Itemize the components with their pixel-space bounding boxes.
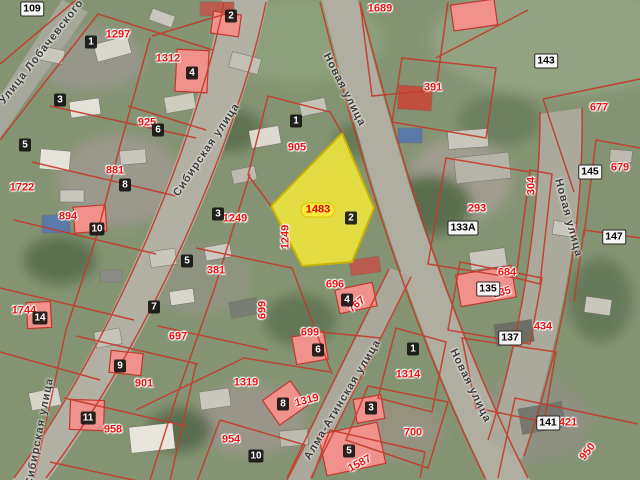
parcel-number-label[interactable]: 881 [106, 165, 124, 178]
house-number-label[interactable]: 10 [248, 450, 263, 463]
house-number-label[interactable]: 7 [148, 301, 160, 314]
house-number-label[interactable]: 1 [407, 343, 419, 356]
parcel-number-label[interactable]: 699 [301, 327, 319, 340]
house-number-label[interactable]: 5 [19, 139, 31, 152]
house-number-label[interactable]: 14 [32, 312, 47, 325]
parcel-number-label[interactable]: 391 [424, 82, 442, 95]
parcel-number-label[interactable]: 304 [526, 177, 539, 195]
street-name-label: Сибирская улица [23, 377, 57, 480]
parcel-number-label[interactable]: 1249 [280, 225, 293, 249]
parcel-number-label[interactable]: 1722 [10, 182, 34, 195]
street-name-label: Сибирская улица [171, 101, 243, 199]
parcel-number-label[interactable]: 677 [590, 102, 608, 115]
house-number-label[interactable]: 10 [89, 223, 104, 236]
address-label[interactable]: 137 [498, 331, 522, 346]
parcel-number-label[interactable]: 1297 [106, 29, 130, 42]
house-number-label[interactable]: 4 [186, 67, 198, 80]
parcel-number-label[interactable]: 421 [559, 417, 577, 430]
house-number-label[interactable]: 5 [181, 255, 193, 268]
parcel-number-label[interactable]: 901 [135, 378, 153, 391]
street-name-label: Новая улица [446, 347, 493, 425]
house-number-label[interactable]: 5 [343, 445, 355, 458]
parcel-number-label[interactable]: 1314 [396, 369, 420, 382]
street-name-label: Новая улица [320, 51, 368, 129]
house-number-label[interactable]: 3 [54, 94, 66, 107]
label-layer: 1297131216893916779259058811722293304679… [0, 0, 640, 480]
parcel-number-label[interactable]: 684 [498, 267, 516, 280]
house-number-label[interactable]: 6 [312, 344, 324, 357]
house-number-label[interactable]: 11 [81, 412, 96, 425]
parcel-number-label[interactable]: 697 [169, 331, 187, 344]
house-number-label[interactable]: 9 [114, 360, 126, 373]
parcel-number-label[interactable]: 696 [326, 279, 344, 292]
address-label[interactable]: 133А [447, 221, 478, 236]
street-name-label: Новая улица [551, 177, 584, 258]
parcel-number-label[interactable]: 1689 [368, 3, 392, 16]
parcel-number-label[interactable]: 1319 [234, 377, 258, 390]
address-label[interactable]: 135 [476, 282, 500, 297]
house-number-label[interactable]: 3 [365, 402, 377, 415]
house-number-label[interactable]: 8 [119, 179, 131, 192]
parcel-number-label[interactable]: 950 [577, 441, 599, 463]
parcel-number-label[interactable]: 1312 [156, 53, 180, 66]
address-label[interactable]: 141 [536, 416, 560, 431]
house-number-label[interactable]: 3 [212, 208, 224, 221]
parcel-number-label[interactable]: 381 [207, 265, 225, 278]
parcel-number-label[interactable]: 958 [104, 424, 122, 437]
address-label[interactable]: 143 [534, 54, 558, 69]
parcel-number-label[interactable]: 1319 [293, 392, 320, 411]
map-viewport[interactable]: 1297131216893916779259058811722293304679… [0, 0, 640, 480]
selected-parcel-number-label[interactable]: 1483 [301, 203, 335, 218]
parcel-number-label[interactable]: 700 [404, 427, 422, 440]
house-number-label[interactable]: 2 [345, 212, 357, 225]
house-number-label[interactable]: 2 [225, 10, 237, 23]
parcel-number-label[interactable]: 905 [288, 142, 306, 155]
parcel-number-label[interactable]: 434 [534, 321, 552, 334]
house-number-label[interactable]: 1 [290, 115, 302, 128]
parcel-number-label[interactable]: 679 [611, 162, 629, 175]
parcel-number-label[interactable]: 699 [257, 301, 270, 319]
parcel-number-label[interactable]: 293 [468, 203, 486, 216]
address-label[interactable]: 109 [20, 2, 44, 17]
house-number-label[interactable]: 4 [341, 294, 353, 307]
address-label[interactable]: 147 [602, 230, 626, 245]
house-number-label[interactable]: 1 [85, 36, 97, 49]
house-number-label[interactable]: 8 [277, 398, 289, 411]
address-label[interactable]: 145 [578, 165, 602, 180]
parcel-number-label[interactable]: 1249 [223, 213, 247, 226]
parcel-number-label[interactable]: 894 [59, 211, 77, 224]
house-number-label[interactable]: 6 [152, 124, 164, 137]
parcel-number-label[interactable]: 954 [222, 434, 240, 447]
